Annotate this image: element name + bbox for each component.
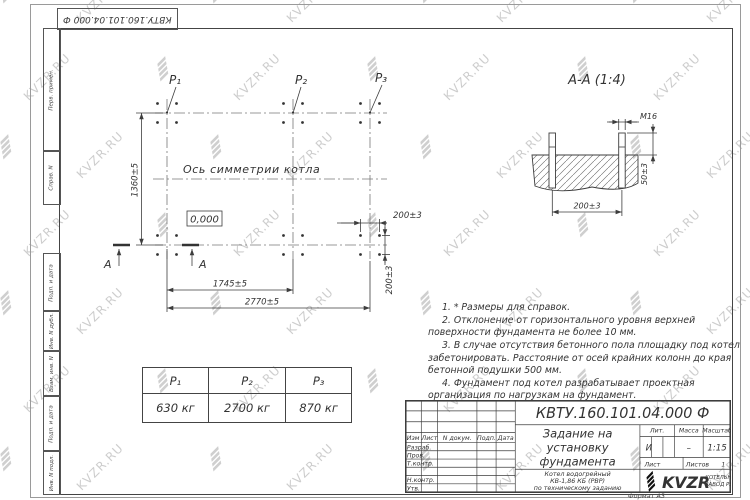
hdr-data: Дата bbox=[497, 435, 514, 442]
hdr-podp: Подп. bbox=[477, 435, 496, 442]
row-tkontr: Т.контр. bbox=[407, 461, 434, 468]
margin-cell-perv-primen: Перв. примен. bbox=[43, 28, 61, 152]
p2-label: P₂ bbox=[295, 73, 307, 87]
section-cut-marks: А А bbox=[103, 245, 207, 271]
row-prov: Пров. bbox=[407, 452, 425, 459]
lit-label: Лит. bbox=[649, 428, 664, 435]
lit-value: И bbox=[646, 443, 653, 453]
title-line-2: установку bbox=[546, 440, 610, 454]
title-line-3: фундамента bbox=[539, 454, 615, 468]
scale-value: 1:15 bbox=[707, 443, 727, 453]
mass-value: – bbox=[687, 443, 691, 453]
margin-cell-inv-dubl: Инв. N дубл. bbox=[43, 310, 61, 352]
margin-cell-podp-data-1: Подп. и дата bbox=[43, 253, 61, 312]
loads-value-p2: 2700 кг bbox=[208, 394, 285, 423]
p3-label: P₃ bbox=[375, 71, 387, 85]
title-line-1: Задание на bbox=[543, 426, 613, 440]
load-point-p1: P₁ bbox=[166, 73, 181, 114]
loads-header-p2: P₂ bbox=[208, 368, 285, 394]
loads-header-p3: P₃ bbox=[286, 368, 352, 394]
loads-header-row: P₁ P₂ P₃ bbox=[143, 368, 352, 394]
svg-text:1360±5: 1360±5 bbox=[131, 163, 141, 197]
kvzr-logo-icon bbox=[0, 134, 21, 160]
logo-caption-2: ЗАВОД РЭП bbox=[705, 482, 731, 488]
loads-table: P₁ P₂ P₃ 630 кг 2700 кг 870 кг bbox=[142, 367, 352, 423]
title-block: КВТУ.160.101.04.000 Ф Изм Лист N докум. … bbox=[405, 400, 731, 493]
margin-cell-vzam-inv: Взам. инв. N bbox=[43, 350, 61, 397]
format-label: Формат А3 bbox=[628, 492, 665, 500]
row-nkontr: Н.контр. bbox=[407, 477, 435, 484]
row-utv: Утв. bbox=[407, 485, 420, 492]
margin-cell-sprav-n: Справ. N bbox=[43, 150, 61, 205]
hdr-ndoc: N докум. bbox=[443, 435, 472, 442]
p1-label: P₁ bbox=[169, 73, 181, 87]
logo-caption-1: КОТЕЛЬНЫЙ bbox=[705, 474, 731, 481]
notes-block: 1. * Размеры для справок. 2. Отклонение … bbox=[428, 302, 742, 403]
svg-text:200±3: 200±3 bbox=[573, 202, 600, 211]
sheets-value: 1 bbox=[721, 461, 725, 468]
hdr-izm: Изм bbox=[407, 435, 420, 442]
note-2: 2. Отклонение от горизонтального уровня … bbox=[428, 315, 742, 340]
load-point-p2: P₂ bbox=[292, 73, 307, 114]
top-doc-number-box: КВТУ.160.101.04.000 Ф bbox=[57, 8, 178, 30]
svg-text:0,000: 0,000 bbox=[190, 215, 219, 226]
svg-text:М16: М16 bbox=[640, 112, 657, 121]
section-letter-left: А bbox=[103, 258, 112, 271]
doc-number: КВТУ.160.101.04.000 Ф bbox=[536, 405, 709, 422]
loads-header-p1: P₁ bbox=[143, 368, 209, 394]
loads-value-row: 630 кг 2700 кг 870 кг bbox=[143, 394, 352, 423]
plan-view: P₁ P₂ P₃ Ось симметрии котла 0,000 1360±… bbox=[95, 65, 425, 315]
sheet-label: Лист bbox=[643, 461, 660, 468]
boiler-axis-label: Ось симметрии котла bbox=[183, 163, 320, 176]
top-doc-number: КВТУ.160.101.04.000 Ф bbox=[63, 14, 172, 24]
loads-value-p1: 630 кг bbox=[143, 394, 209, 423]
dim-2770: 2770±5 bbox=[167, 261, 370, 312]
svg-text:200±3: 200±3 bbox=[385, 266, 395, 295]
sheets-label: Листов bbox=[685, 461, 710, 468]
dim-bolt-200-vertical: 200±3 bbox=[382, 225, 395, 294]
drawing-sheet: { "watermark": { "text": "KVZR.RU" }, "f… bbox=[0, 0, 750, 500]
kvzr-logo-icon bbox=[0, 0, 21, 4]
note-3: 3. В случае отсутствия бетонного пола пл… bbox=[428, 340, 742, 378]
load-point-p3: P₃ bbox=[369, 71, 387, 114]
loads-value-p3: 870 кг bbox=[286, 394, 352, 423]
section-view-a-a: А-А (1:4) М16 50±3 200±3 bbox=[440, 70, 740, 220]
level-mark: 0,000 bbox=[187, 211, 222, 226]
mass-label: Масса bbox=[679, 428, 699, 435]
logo-text: KVZR bbox=[662, 473, 710, 492]
dim-m16: М16 bbox=[607, 112, 657, 130]
margin-cell-inv-podl: Инв. N подл. bbox=[43, 450, 61, 495]
kvzr-logo-icon bbox=[0, 446, 21, 472]
svg-text:50±3: 50±3 bbox=[640, 163, 649, 185]
foundation-outline bbox=[153, 99, 387, 259]
scale-label: Масштаб bbox=[702, 427, 731, 435]
row-razrab: Разраб. bbox=[407, 443, 431, 451]
hdr-list: Лист bbox=[421, 435, 438, 442]
kvzr-logo-icon bbox=[641, 471, 661, 492]
svg-text:2770±5: 2770±5 bbox=[245, 298, 279, 308]
product-line-3: по техническому заданию bbox=[534, 484, 622, 492]
margin-cell-podp-data-2: Подп. и дата bbox=[43, 395, 61, 452]
svg-text:200±3: 200±3 bbox=[393, 211, 422, 221]
dim-bolt-200-horizontal: 200±3 bbox=[337, 211, 422, 232]
dim-200-section: 200±3 bbox=[552, 190, 622, 216]
section-letter-right: А bbox=[198, 258, 207, 271]
section-title: А-А (1:4) bbox=[567, 73, 626, 88]
note-1: 1. * Размеры для справок. bbox=[428, 302, 742, 315]
kvzr-logo: KVZR КОТЕЛЬНЫЙ ЗАВОД РЭП bbox=[641, 471, 731, 492]
svg-text:1745±5: 1745±5 bbox=[213, 280, 247, 290]
kvzr-logo-icon bbox=[0, 290, 21, 316]
